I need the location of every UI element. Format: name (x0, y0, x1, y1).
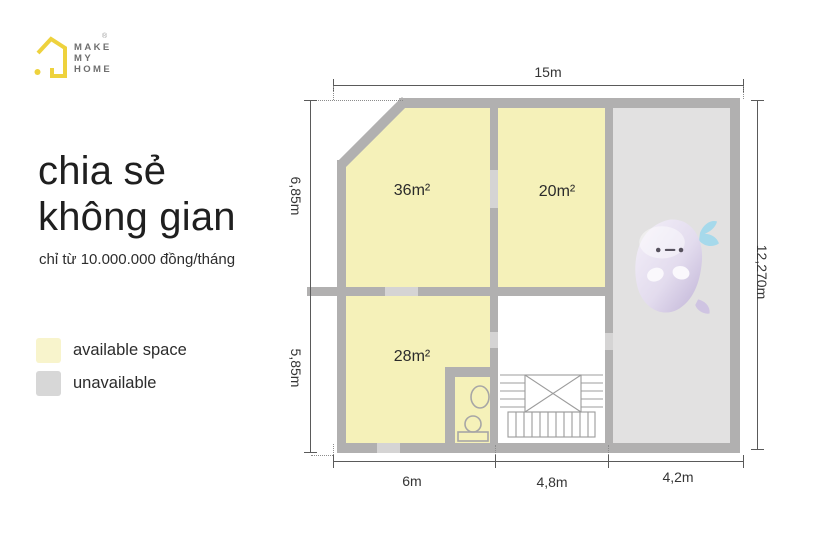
extension-line (608, 445, 609, 455)
mascot-tail (695, 299, 709, 313)
wall-bathroom-left (445, 377, 455, 443)
room-28-label: 28m² (394, 348, 430, 366)
wall-left (337, 160, 346, 453)
tick (304, 100, 317, 101)
extension-line (743, 86, 744, 99)
dim-bottom-label-3: 4,2m (662, 469, 693, 485)
tick (495, 455, 496, 468)
room-20-label: 20m² (539, 183, 575, 201)
wall-bathroom-top (445, 367, 498, 377)
wall-middle-horizontal (307, 287, 613, 296)
door-opening-middle (385, 287, 418, 296)
tail-fin-icon (699, 221, 719, 246)
floor-plan: 15m 6,85m 5,85m 12,270m 6m 4,8m 4,2m 36m… (0, 0, 828, 552)
dim-line-left (310, 100, 311, 453)
toilet-icon (471, 386, 489, 408)
extension-line (495, 445, 496, 455)
extension-line (311, 455, 333, 456)
dim-bottom-label-2: 4,8m (536, 474, 567, 490)
dim-top-label: 15m (534, 64, 561, 80)
sink-counter-icon (458, 432, 488, 441)
room-36-label: 36m² (394, 182, 430, 200)
mascot-character (622, 212, 722, 324)
mascot-eye-right (679, 248, 684, 253)
dim-left-lower-label: 5,85m (288, 349, 304, 388)
tick (608, 455, 609, 468)
dim-bottom-label-1: 6m (402, 473, 421, 489)
door-opening-36-20 (490, 170, 498, 208)
sink-icon (465, 416, 481, 432)
extension-line (333, 86, 334, 100)
window-opening-bottom (377, 443, 400, 453)
door-opening-corridor (605, 333, 613, 350)
mascot-eye-left (656, 248, 661, 253)
door-opening-28 (490, 332, 498, 348)
tick (743, 455, 744, 468)
extension-line (313, 100, 403, 101)
tick (751, 449, 764, 450)
dim-line-top (333, 85, 743, 86)
wall-right (730, 98, 740, 453)
tick (751, 100, 764, 101)
wall-top (399, 98, 740, 108)
poster: MAKE MY HOME ® chia sẻ không gian chỉ từ… (0, 0, 828, 552)
dim-line-bottom (333, 461, 743, 462)
dim-right-label: 12,270m (754, 245, 770, 299)
wall-corridor-right (605, 104, 613, 443)
tick (333, 455, 334, 468)
bathroom-fixtures (455, 380, 493, 442)
staircase-icon (500, 372, 603, 440)
extension-line (333, 444, 334, 455)
tick (304, 452, 317, 453)
dim-left-upper-label: 6,85m (288, 177, 304, 216)
